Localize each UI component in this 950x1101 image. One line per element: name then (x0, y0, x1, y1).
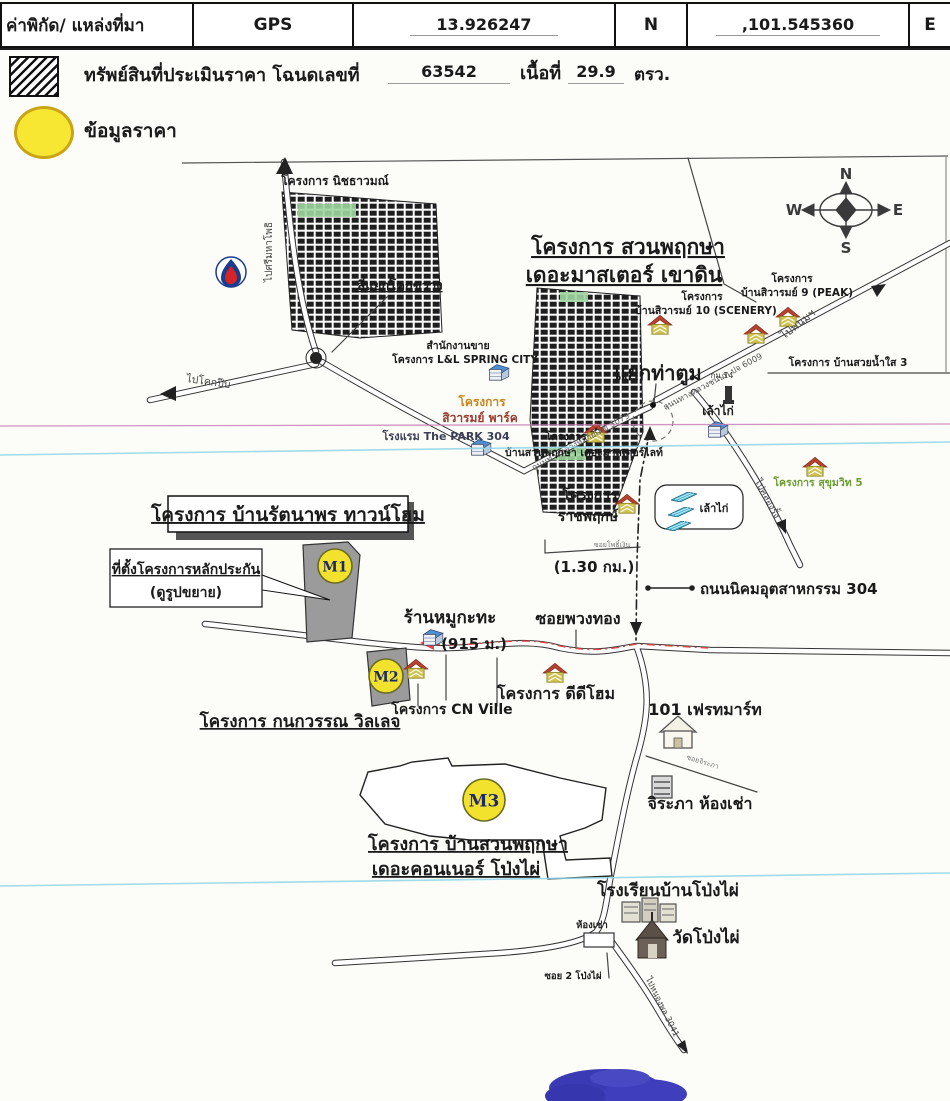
wat-pongphai-label: วัดโป่งไผ่ (672, 927, 739, 948)
distance-915m-label: (915 ม.) (441, 635, 507, 653)
freshmart-icon (660, 716, 696, 748)
school-pongphai-label: โรงเรียนบ้านโป่งไผ่ (596, 880, 739, 901)
proj-sivarom9-line1-label: โครงการ (770, 272, 813, 285)
proj-connor-line1-label: โครงการ บ้านสวนพฤกษา (367, 833, 568, 855)
header-divider-line (0, 48, 950, 50)
proj-baansuaynamsai-label: โครงการ บ้านสวยน้ำใส 3 (788, 354, 908, 369)
green-lots-1 (298, 204, 356, 217)
to-srimahaphot-label: ไปศรีมหาโพธิ (262, 222, 275, 283)
hatch-legend-icon (9, 56, 59, 97)
proj-sivarom10-line1-label: โครงการ (680, 290, 723, 303)
longitude-dir: E (908, 4, 950, 46)
proj-ddhome-label: โครงการ ดีดีโฮม (496, 683, 615, 703)
arrow-phanom (871, 284, 886, 297)
longitude-value: ,101.545360 (716, 15, 880, 36)
area-unit: ตรว. (634, 61, 670, 88)
proj-suanpruksa-line2-label: เดอะมาสเตอร์ เขาดิน (526, 263, 723, 287)
freshmart-101-label: 101 เฟรทมาร์ท (648, 700, 762, 719)
coord-source-label: ค่าพิกัด/ แหล่งที่มา (2, 4, 192, 46)
sales-office-line1-label: สำนักงานขาย (426, 340, 489, 352)
latitude-cell: 13.926247 (352, 4, 614, 46)
chicken-coop-1-label: เล้าไก่ (702, 403, 734, 418)
sales-office-line2-label: โครงการ L&L SPRING CITY (391, 353, 538, 366)
proj-nitchawamon-label: โครงการ นิชธาวมณ์ (280, 173, 389, 188)
coordinates-table: ค่าพิกัด/ แหล่งที่มา GPS 13.926247 N ,10… (0, 2, 950, 48)
km14-monument-icon (723, 386, 734, 404)
mookata-shop-label: ร้านหมูกะทะ (404, 608, 496, 629)
building-icon (490, 365, 509, 381)
proj-sivarom9-line2-label: บ้านสิวารมย์ 9 (PEAK) (741, 286, 853, 299)
distance-130km-label: (1.30 กม.) (554, 558, 635, 576)
rental-rect (584, 933, 614, 947)
location-map: N E S W M1M2M3 โครงการ นิชธาวมณ์ไปศรีมหา… (0, 0, 950, 1101)
to-nongphon-3041-label: ไปหนองพล 3041 (643, 974, 682, 1039)
scanned-location-map-page: { "header": { "coord_label": "ค่าพิกัด/ … (0, 0, 950, 1101)
proj-kanokwan-label: โครงการ กนกวรรณ วิลเลจ (199, 711, 401, 732)
nikhom304-dot2 (689, 585, 695, 591)
compass-e: E (893, 201, 903, 219)
price-legend-label: ข้อมูลราคา (84, 116, 177, 146)
collateral-callout-line2-label: (ดูรูปขยาย) (150, 585, 222, 601)
green-lots-3 (560, 292, 588, 302)
house-icon (744, 324, 768, 343)
deed-label: ทรัพย์สินที่ประเมินราคา โฉนดเลขที่ (84, 60, 360, 89)
ink-stamp (545, 1069, 687, 1101)
compass-s: S (841, 239, 852, 257)
soi-2-pongphai-label: ซอย 2 โป่งไผ่ (544, 970, 601, 982)
compass-w: W (786, 201, 803, 219)
proj-sivarom10-line2-label: บ้านสิวารมย์ 10 (SCENERY) (635, 304, 777, 317)
latitude-dir: N (614, 4, 686, 46)
khokkhwang-roundabout (310, 352, 322, 364)
rental-rooms-label: ห้องเช่า (576, 919, 608, 931)
jirapha-rental-label: จิระภา ห้องเช่า (647, 794, 753, 813)
hotel-park304-label: โรงแรม The PARK 304 (381, 429, 510, 443)
longitude-cell: ,101.545360 (686, 4, 908, 46)
price-legend: ข้อมูลราคา (0, 104, 400, 160)
housing-estate-suanpruksa (530, 288, 643, 516)
chicken-coop-2-label: เล้าไก่ (700, 501, 729, 515)
proj-ratchapruek-line1-label: โครงการ (561, 486, 618, 504)
house-icon (803, 457, 827, 476)
marker-m3-label: M3 (469, 792, 500, 812)
proj-sivarom-park-line1-label: โครงการ (457, 394, 506, 409)
arrow-route-up (644, 426, 656, 440)
proj-connor-line2-label: เดอะคอนเนอร์ โป่งไผ่ (372, 858, 540, 880)
proj-sukhumvit5-label: โครงการ สุขุมวิท 5 (772, 476, 862, 490)
marker-m2-label: M2 (373, 669, 398, 685)
coord-source-value: GPS (192, 4, 352, 46)
nikhom304-dot1 (645, 585, 651, 591)
house-icon (648, 315, 672, 334)
soi-pho-ngern-label: ซอยโพธิ์เงิน (594, 539, 631, 549)
compass-rose: N E S W (786, 165, 903, 257)
proj-cn-ville-label: โครงการ CN Ville (390, 700, 512, 718)
proj-ratchapruek-line2-label: ราชพฤกษ์ (558, 508, 619, 525)
soi-jirapha-label: ซอยจิระภา (686, 753, 720, 770)
proj-suanpruksa-line1-label: โครงการ สวนพฤกษา (530, 234, 725, 259)
area-label: เนื้อที่ (520, 58, 561, 87)
proj-master-light-line1-label: โครงการ (544, 430, 587, 443)
proj-rattanaporn-label: โครงการ บ้านรัตนาพร ทาวน์โฮม (150, 503, 425, 526)
latitude-value: 13.926247 (410, 15, 557, 36)
deed-number: 63542 (388, 62, 510, 84)
road-nikhom-304-label: ถนนนิคมอุตสาหกรรม 304 (700, 580, 878, 599)
tha-tum-junction-label: แยกท่าตูม (614, 361, 701, 387)
gas-station-logo (216, 257, 246, 287)
compass-n: N (840, 165, 853, 183)
lane-soi2 (607, 953, 609, 978)
route-dashdot-road (636, 430, 650, 640)
price-circle-icon (14, 106, 74, 159)
school-icon (622, 898, 676, 922)
building-icon (424, 630, 443, 646)
marker-m1-label: M1 (322, 559, 347, 575)
thatum-junction-dot (650, 402, 656, 408)
arrow-route-down (630, 622, 642, 636)
soi-puang-thong-label: ซอยพวงทอง (535, 609, 620, 628)
km14-label-label: กม.14 (711, 371, 734, 380)
house-icon (543, 663, 567, 682)
khok-khwang-intersection-label: สี่แยกโคกขวาง (357, 276, 442, 294)
area-value: 29.9 (568, 62, 624, 84)
deed-row: ทรัพย์สินที่ประเมินราคา โฉนดเลขที่ 63542… (0, 52, 950, 104)
proj-sivarom-park-line2-label: สิวารมย์ พาร์ค (442, 411, 518, 425)
